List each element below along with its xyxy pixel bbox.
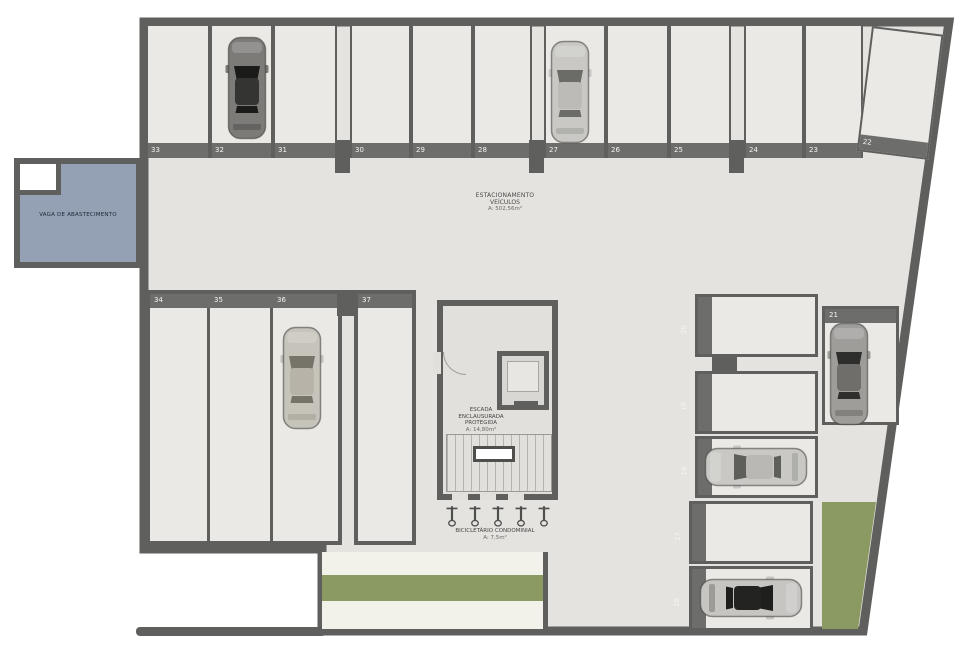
stall-number: 37 bbox=[362, 297, 371, 304]
stairwell-line3: PROTEGIDA bbox=[439, 420, 523, 427]
garage-area-line1: ESTACIONAMENTO bbox=[445, 192, 565, 199]
stall-number-band: 17 bbox=[692, 504, 706, 561]
stall-number-band: 30 bbox=[352, 143, 409, 158]
stall-number: 28 bbox=[478, 147, 487, 154]
bike-parking-area: A: 7,5m² bbox=[425, 535, 565, 542]
column bbox=[729, 140, 744, 173]
car-stall-36 bbox=[282, 326, 322, 430]
stall-number: 19 bbox=[680, 402, 729, 411]
parking-stall-24: 24 bbox=[744, 26, 804, 158]
door-opening bbox=[452, 494, 468, 500]
column bbox=[529, 140, 544, 173]
wall-segment bbox=[543, 552, 548, 629]
parking-stall-31: 31 bbox=[273, 26, 337, 158]
bike-rack-icon bbox=[490, 503, 506, 527]
stall-number-band: 26 bbox=[608, 143, 667, 158]
stall-number-band: 31 bbox=[275, 143, 335, 158]
stall-divider bbox=[207, 294, 210, 541]
column bbox=[712, 357, 737, 372]
parking-stall-37: 37 bbox=[354, 290, 416, 545]
parking-floor-plan: 33 32 31 30 29 28 27 26 25 24 23 bbox=[0, 0, 980, 650]
parking-stall-30: 30 bbox=[350, 26, 411, 158]
stairwell-line2: ENCLAUSURADA bbox=[439, 414, 523, 421]
stairwell-area: A: 14,80m² bbox=[439, 427, 523, 434]
stall-number: 27 bbox=[549, 147, 558, 154]
stall-number-band: 20 bbox=[698, 297, 712, 354]
parking-stall-25: 25 bbox=[669, 26, 731, 158]
garage-area-line3: A: 502,56m² bbox=[445, 206, 565, 212]
stall-number-band: 28 bbox=[475, 143, 530, 158]
door-opening bbox=[480, 494, 496, 500]
stall-number: 29 bbox=[416, 147, 425, 154]
door-opening bbox=[433, 352, 441, 374]
stall-number-band: 27 bbox=[546, 143, 604, 158]
car-stall-27 bbox=[550, 40, 590, 144]
parking-stall-33: 33 bbox=[146, 26, 210, 158]
stall-number: 23 bbox=[809, 147, 818, 154]
stall-number-band: 33 bbox=[148, 143, 208, 158]
bottom-boundary-wall bbox=[136, 627, 326, 636]
stall-number: 30 bbox=[355, 147, 364, 154]
stall-number-band: 34 35 36 bbox=[150, 294, 338, 308]
stall-number-band: 19 bbox=[698, 374, 712, 431]
parking-stall-29: 29 bbox=[411, 26, 473, 158]
stall-number-band: 21 bbox=[825, 309, 896, 323]
stall-number: 31 bbox=[278, 147, 287, 154]
stall-number-band: 24 bbox=[746, 143, 802, 158]
column bbox=[337, 290, 356, 316]
bike-rack-icon bbox=[444, 503, 460, 527]
parking-stall-17: 17 bbox=[689, 501, 813, 564]
garage-area-label: ESTACIONAMENTO VEÍCULOS A: 502,56m² bbox=[445, 192, 565, 212]
bike-rack-icon bbox=[536, 503, 552, 527]
stall-number: 26 bbox=[611, 147, 620, 154]
fuel-bay: VAGA DE ABASTECIMENTO bbox=[14, 158, 142, 268]
car-stall-18 bbox=[704, 447, 808, 487]
stall-number: 32 bbox=[215, 147, 224, 154]
stall-number-band: 25 bbox=[671, 143, 729, 158]
column bbox=[335, 140, 350, 173]
bike-rack-icon bbox=[467, 503, 483, 527]
car-stall-32 bbox=[227, 36, 267, 140]
elevator-cab bbox=[507, 361, 539, 392]
stall-number: 33 bbox=[151, 147, 160, 154]
stall-number: 22 bbox=[862, 139, 872, 147]
car-stall-16 bbox=[699, 578, 803, 618]
stairwell-line1: ESCADA bbox=[439, 407, 523, 414]
stall-number-band: 29 bbox=[413, 143, 471, 158]
bike-rack-icon bbox=[513, 503, 529, 527]
parking-stall-19: 19 bbox=[695, 371, 818, 434]
fuel-bay-label: VAGA DE ABASTECIMENTO bbox=[20, 212, 136, 218]
parking-stall-26: 26 bbox=[606, 26, 669, 158]
bike-parking-line1: BICICLETÁRIO CONDOMINIAL bbox=[425, 528, 565, 535]
bike-parking-label: BICICLETÁRIO CONDOMINIAL A: 7,5m² bbox=[425, 528, 565, 541]
parking-stall-20: 20 bbox=[695, 294, 818, 357]
stall-number: 21 bbox=[829, 312, 838, 319]
stall-number: 17 bbox=[674, 532, 723, 541]
stall-number: 25 bbox=[674, 147, 683, 154]
stall-divider bbox=[270, 294, 273, 541]
stair-treads bbox=[446, 434, 552, 492]
stall-number: 20 bbox=[680, 325, 729, 334]
fuel-bay-notch bbox=[20, 164, 61, 195]
stall-number: 35 bbox=[214, 297, 223, 304]
parking-stall-22: 22 bbox=[857, 26, 944, 160]
stall-number: 24 bbox=[749, 147, 758, 154]
car-stall-21 bbox=[829, 322, 869, 426]
stair-landing bbox=[473, 446, 515, 462]
stall-number-band: 32 bbox=[212, 143, 271, 158]
stall-number: 34 bbox=[154, 297, 163, 304]
stall-number-band: 23 bbox=[806, 143, 861, 158]
garage-area-line2: VEÍCULOS bbox=[445, 199, 565, 206]
stall-number-band: 37 bbox=[358, 294, 412, 308]
landscape-strip-bottom bbox=[322, 575, 545, 601]
stairwell-label: ESCADA ENCLAUSURADA PROTEGIDA A: 14,80m² bbox=[439, 407, 523, 433]
parking-stall-28: 28 bbox=[473, 26, 532, 158]
parking-stall-23: 23 bbox=[804, 26, 863, 158]
door-opening bbox=[508, 494, 524, 500]
stall-number: 36 bbox=[277, 297, 286, 304]
